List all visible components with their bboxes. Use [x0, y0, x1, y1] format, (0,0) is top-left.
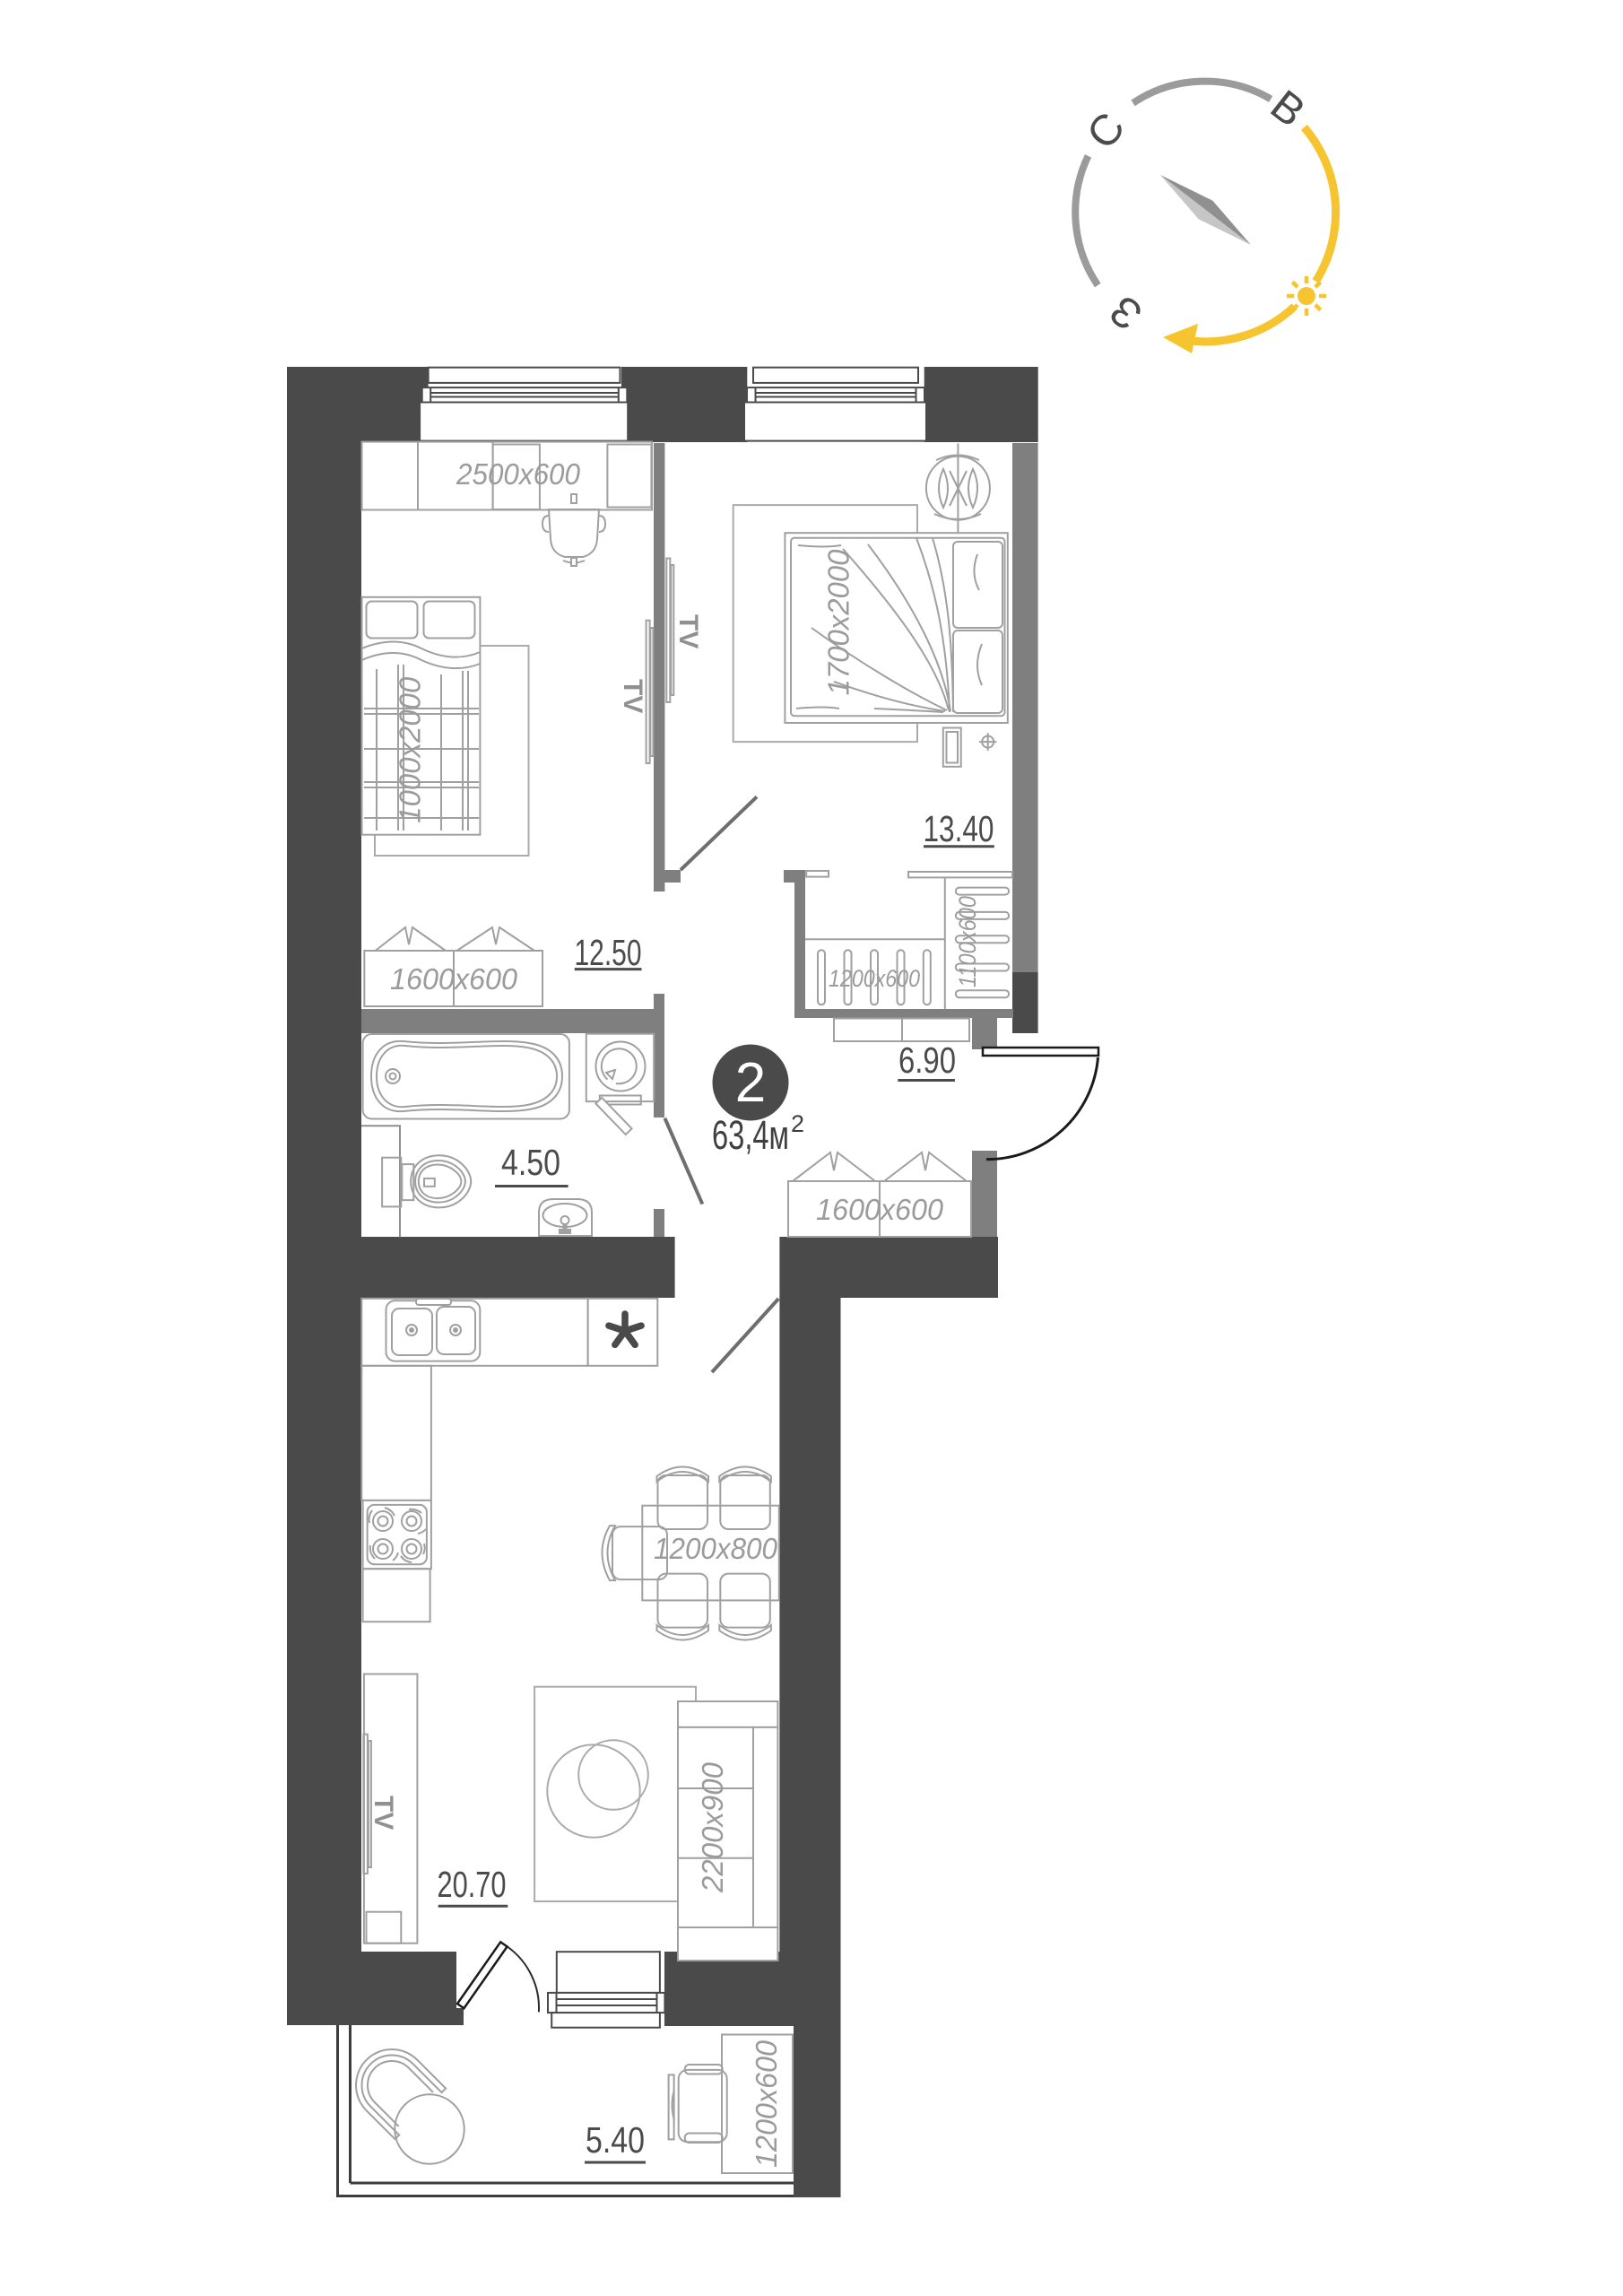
svg-text:1200x600: 1200x600 [829, 965, 920, 992]
svg-text:13.40: 13.40 [924, 808, 994, 849]
svg-text:TV: TV [618, 679, 647, 713]
svg-text:2: 2 [735, 1052, 766, 1114]
svg-text:1000x2000: 1000x2000 [394, 676, 427, 823]
svg-text:1200x800: 1200x800 [654, 1532, 778, 1565]
svg-text:6.90: 6.90 [898, 1039, 956, 1081]
svg-text:12.50: 12.50 [575, 932, 642, 973]
svg-text:2500x600: 2500x600 [456, 457, 581, 491]
svg-text:5.40: 5.40 [586, 2119, 645, 2161]
svg-text:1600x600: 1600x600 [390, 962, 518, 996]
svg-text:20.70: 20.70 [438, 1864, 507, 1905]
svg-text:1600x600: 1600x600 [816, 1193, 944, 1226]
svg-text:TV: TV [369, 1796, 398, 1830]
svg-text:2200x900: 2200x900 [696, 1761, 729, 1893]
svg-text:4.50: 4.50 [501, 1142, 560, 1183]
svg-text:TV: TV [673, 614, 703, 648]
svg-text:2: 2 [791, 1110, 804, 1137]
svg-text:1100x600: 1100x600 [954, 896, 981, 987]
svg-text:63,4м: 63,4м [712, 1112, 789, 1158]
svg-text:1200x600: 1200x600 [750, 2039, 783, 2168]
svg-text:1700x2000: 1700x2000 [821, 549, 855, 696]
